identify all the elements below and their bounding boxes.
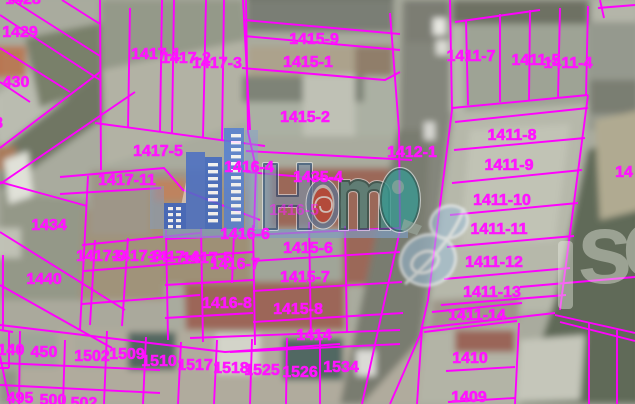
svg-text:e: e — [622, 187, 635, 299]
svg-text:1525: 1525 — [244, 362, 280, 379]
svg-text:1502: 1502 — [74, 348, 110, 365]
svg-text:1411-12: 1411-12 — [465, 254, 523, 271]
svg-text:14: 14 — [615, 164, 633, 181]
svg-text:500: 500 — [40, 392, 67, 404]
svg-text:1414: 1414 — [296, 327, 332, 344]
svg-text:1410: 1410 — [452, 350, 488, 367]
svg-text:1411-10: 1411-10 — [473, 192, 531, 209]
svg-text:502: 502 — [71, 395, 98, 404]
svg-text:1518: 1518 — [213, 360, 249, 377]
svg-text:140: 140 — [0, 342, 24, 359]
svg-text:1409: 1409 — [451, 389, 487, 404]
svg-text:1526: 1526 — [282, 364, 318, 381]
svg-text:1411-11: 1411-11 — [471, 221, 528, 238]
svg-text:18: 18 — [0, 115, 3, 132]
svg-text:1415-7: 1415-7 — [280, 269, 330, 286]
svg-text:450: 450 — [31, 344, 58, 361]
svg-text:1416-6: 1416-6 — [220, 226, 270, 243]
svg-text:1415-8: 1415-8 — [273, 301, 323, 318]
svg-text:1411-9: 1411-9 — [485, 157, 534, 174]
svg-text:1440: 1440 — [26, 271, 62, 288]
svg-text:495: 495 — [7, 390, 34, 404]
svg-text:1417-3: 1417-3 — [192, 55, 242, 72]
svg-text:1417-11: 1417-11 — [98, 172, 156, 189]
svg-text:1411-8: 1411-8 — [488, 127, 537, 144]
svg-text:1415-1: 1415-1 — [283, 54, 333, 71]
svg-text:1415-2: 1415-2 — [280, 109, 330, 126]
svg-text:1411-4: 1411-4 — [544, 55, 593, 72]
svg-text:1416-8: 1416-8 — [202, 295, 252, 312]
svg-text:1411-7: 1411-7 — [447, 48, 496, 65]
svg-text:1517: 1517 — [177, 357, 213, 374]
svg-text:430: 430 — [3, 74, 30, 91]
svg-text:1415-9: 1415-9 — [289, 31, 339, 48]
svg-text:1416-5: 1416-5 — [269, 202, 319, 219]
svg-text:1411-14: 1411-14 — [448, 307, 506, 324]
svg-text:1510: 1510 — [141, 353, 177, 370]
svg-text:1416-4: 1416-4 — [224, 159, 274, 176]
svg-text:1417-5: 1417-5 — [133, 143, 183, 160]
svg-text:1534: 1534 — [323, 359, 359, 376]
svg-text:1434: 1434 — [31, 217, 67, 234]
svg-text:1416-7: 1416-7 — [210, 256, 260, 273]
svg-text:1435-4: 1435-4 — [293, 169, 343, 186]
svg-text:1429: 1429 — [2, 24, 38, 41]
svg-text:1415-6: 1415-6 — [283, 240, 333, 257]
svg-text:1412-1: 1412-1 — [387, 144, 437, 161]
svg-text:1411-13: 1411-13 — [463, 284, 521, 301]
svg-text:1509: 1509 — [109, 346, 145, 363]
svg-text:1428: 1428 — [5, 0, 41, 8]
